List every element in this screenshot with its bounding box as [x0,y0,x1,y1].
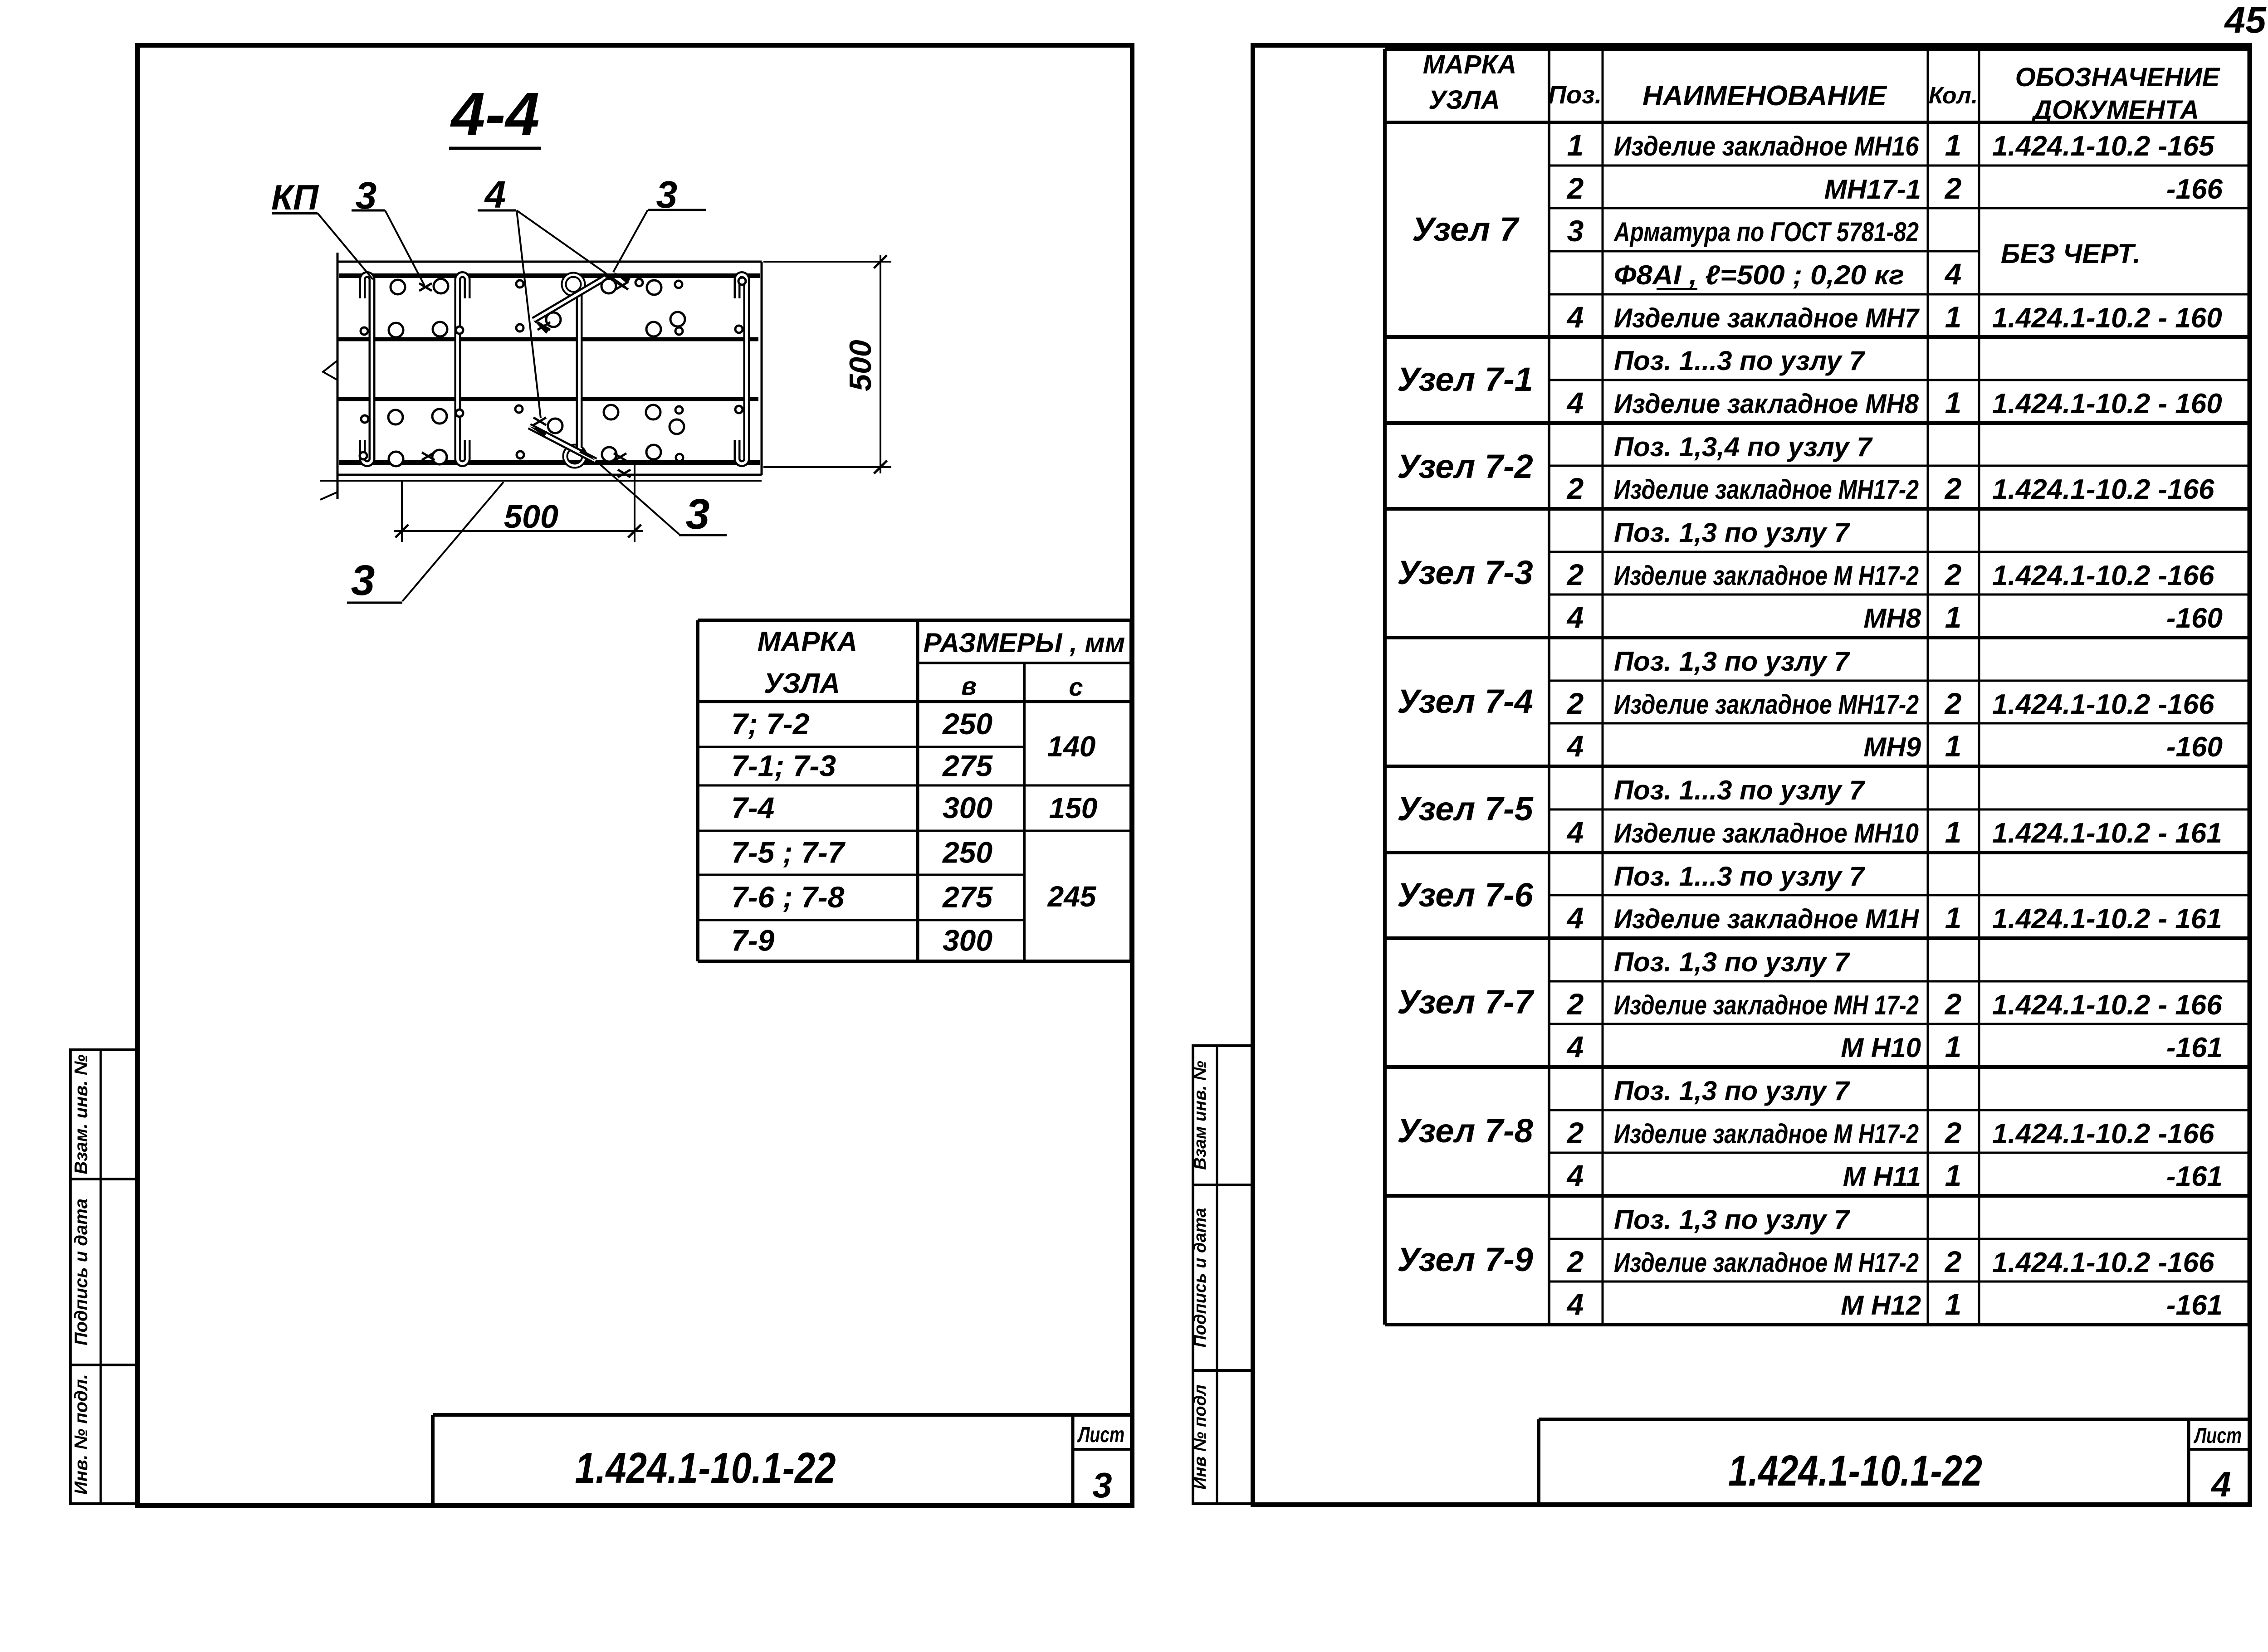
svg-text:7-4: 7-4 [731,791,774,824]
svg-text:7-9: 7-9 [731,924,775,957]
svg-text:2: 2 [1944,1116,1962,1150]
svg-text:2: 2 [1566,558,1584,591]
svg-text:-161: -161 [2166,1032,2223,1063]
svg-text:4: 4 [1566,300,1584,334]
svg-text:Поз. 1,3,4 по узлу 7: Поз. 1,3,4 по узлу 7 [1614,432,1873,462]
svg-text:Узел 7-7: Узел 7-7 [1397,983,1535,1021]
svg-text:Изделие закладное МН 17-2: Изделие закладное МН 17-2 [1614,990,1919,1020]
svg-text:1.424.1-10.2 -166: 1.424.1-10.2 -166 [1992,1118,2214,1150]
svg-text:Ф8АI , ℓ=500 ; 0,20 кг: Ф8АI , ℓ=500 ; 0,20 кг [1614,260,1904,290]
svg-text:Изделие закладное МН17-2: Изделие закладное МН17-2 [1614,474,1919,505]
svg-text:4: 4 [1944,257,1962,291]
svg-text:ДОКУМЕНТА: ДОКУМЕНТА [2031,95,2199,125]
svg-text:4: 4 [1566,729,1584,763]
svg-text:45: 45 [2224,0,2267,41]
svg-text:1.424.1-10.1-22: 1.424.1-10.1-22 [575,1444,836,1492]
svg-text:-161: -161 [2166,1290,2223,1321]
svg-text:Изделие закладное М Н17-2: Изделие закладное М Н17-2 [1614,1119,1919,1149]
svg-text:МН9: МН9 [1863,732,1921,762]
svg-text:1.424.1-10.2 -166: 1.424.1-10.2 -166 [1992,560,2214,591]
svg-text:Инв № подл: Инв № подл [1191,1384,1210,1489]
svg-text:1: 1 [1945,128,1962,162]
svg-text:250: 250 [942,836,992,869]
svg-text:275: 275 [942,880,993,914]
svg-text:1: 1 [1945,386,1962,419]
svg-text:РАЗМЕРЫ , мм: РАЗМЕРЫ , мм [924,628,1125,658]
svg-text:Поз. 1,3 по узлу 7: Поз. 1,3 по узлу 7 [1614,1204,1850,1235]
svg-text:Поз. 1,3 по узлу 7: Поз. 1,3 по узлу 7 [1614,517,1850,548]
svg-text:1: 1 [1945,300,1962,334]
svg-text:Поз. 1...3 по узлу 7: Поз. 1...3 по узлу 7 [1614,346,1865,376]
svg-text:1.424.1-10.2 - 160: 1.424.1-10.2 - 160 [1992,388,2222,419]
svg-text:1.424.1-10.2 -166: 1.424.1-10.2 -166 [1992,689,2214,720]
svg-text:Поз.: Поз. [1548,80,1602,109]
svg-text:УЗЛА: УЗЛА [1428,85,1500,115]
svg-text:НАИМЕНОВАНИЕ: НАИМЕНОВАНИЕ [1642,80,1887,112]
svg-text:3: 3 [1567,214,1584,248]
svg-text:1: 1 [1945,815,1962,849]
svg-text:МАРКА: МАРКА [1423,50,1516,79]
svg-text:140: 140 [1047,730,1096,763]
svg-text:1.424.1-10.2 - 161: 1.424.1-10.2 - 161 [1992,818,2222,849]
svg-text:4: 4 [2210,1464,2231,1504]
svg-text:1: 1 [1945,729,1962,763]
svg-text:Лист: Лист [1077,1423,1124,1447]
svg-text:Узел 7-8: Узел 7-8 [1397,1112,1534,1150]
svg-text:2: 2 [1944,687,1962,720]
svg-text:1: 1 [1945,1159,1962,1192]
svg-text:2: 2 [1566,1245,1584,1278]
svg-text:М Н10: М Н10 [1841,1033,1921,1063]
svg-text:Подпись и дата: Подпись и дата [1191,1208,1210,1347]
svg-text:Изделие закладное МН17-2: Изделие закладное МН17-2 [1614,689,1919,720]
svg-text:1: 1 [1567,128,1584,162]
svg-text:1: 1 [1945,600,1962,634]
svg-text:2: 2 [1944,987,1962,1021]
svg-text:7-1; 7-3: 7-1; 7-3 [731,749,836,783]
svg-text:Поз. 1,3 по узлу 7: Поз. 1,3 по узлу 7 [1614,947,1850,977]
svg-text:1: 1 [1945,1030,1962,1063]
svg-text:300: 300 [943,924,992,957]
svg-text:2: 2 [1566,687,1584,720]
svg-text:Узел 7-1: Узел 7-1 [1397,361,1533,398]
svg-text:Узел 7-3: Узел 7-3 [1397,554,1533,591]
svg-text:4: 4 [1566,1287,1584,1321]
svg-text:4: 4 [1566,815,1584,849]
svg-text:Взам. инв. №: Взам. инв. № [71,1054,91,1174]
svg-text:2: 2 [1944,1245,1962,1278]
svg-text:3: 3 [1092,1465,1112,1505]
svg-text:МН8: МН8 [1863,603,1921,634]
svg-text:1: 1 [1945,901,1962,935]
svg-text:4: 4 [1566,1030,1584,1063]
svg-text:1.424.1-10.2 - 160: 1.424.1-10.2 - 160 [1992,302,2222,334]
svg-text:2: 2 [1566,472,1584,505]
svg-text:4-4: 4-4 [450,80,539,148]
svg-text:КП: КП [271,177,319,217]
svg-text:-161: -161 [2166,1161,2223,1192]
svg-text:Узел 7-4: Узел 7-4 [1397,682,1533,720]
svg-text:М Н12: М Н12 [1841,1290,1921,1321]
svg-text:Изделие закладное М Н17-2: Изделие закладное М Н17-2 [1614,1248,1919,1278]
svg-text:150: 150 [1049,792,1098,824]
svg-text:Изделие закладное МН7: Изделие закладное МН7 [1614,303,1920,333]
svg-text:в: в [961,672,977,700]
svg-text:БЕЗ ЧЕРТ.: БЕЗ ЧЕРТ. [2001,239,2141,269]
svg-text:2: 2 [1566,1116,1584,1150]
svg-text:-160: -160 [2166,603,2223,634]
svg-text:4: 4 [1566,1159,1584,1192]
svg-text:250: 250 [942,707,992,741]
svg-text:Поз. 1,3 по узлу 7: Поз. 1,3 по узлу 7 [1614,1076,1850,1106]
svg-text:Подпись и дата: Подпись и дата [71,1199,91,1345]
svg-text:500: 500 [504,499,558,535]
svg-text:1.424.1-10.2 - 166: 1.424.1-10.2 - 166 [1992,989,2222,1021]
svg-text:ОБОЗНАЧЕНИЕ: ОБОЗНАЧЕНИЕ [2015,63,2221,92]
svg-text:1.424.1-10.2 - 161: 1.424.1-10.2 - 161 [1992,903,2222,935]
svg-text:Поз. 1...3 по узлу 7: Поз. 1...3 по узлу 7 [1614,861,1865,892]
svg-text:1.424.1-10.2 -165: 1.424.1-10.2 -165 [1992,131,2215,162]
svg-text:1.424.1-10.1-22: 1.424.1-10.1-22 [1728,1447,1982,1495]
svg-text:Лист: Лист [2194,1424,2242,1448]
svg-text:-166: -166 [2166,174,2223,205]
svg-text:7; 7-2: 7; 7-2 [731,707,810,741]
svg-text:7-5 ; 7-7: 7-5 ; 7-7 [731,836,846,869]
svg-text:Узел 7-2: Узел 7-2 [1397,448,1533,485]
svg-text:Изделие закладное МН16: Изделие закладное МН16 [1614,131,1919,161]
svg-text:3: 3 [686,490,710,538]
svg-text:275: 275 [942,749,993,783]
svg-text:3: 3 [351,556,375,604]
svg-text:500: 500 [843,340,878,391]
svg-text:Изделие закладное М1Н: Изделие закладное М1Н [1614,904,1920,934]
svg-text:1.424.1-10.2 -166: 1.424.1-10.2 -166 [1992,474,2214,505]
svg-text:МАРКА: МАРКА [758,626,858,658]
svg-text:-160: -160 [2166,731,2223,763]
svg-text:2: 2 [1944,558,1962,591]
svg-text:М Н11: М Н11 [1843,1161,1921,1192]
svg-text:Взам инв. №: Взам инв. № [1191,1061,1210,1170]
svg-text:Узел 7-6: Узел 7-6 [1397,876,1534,914]
svg-text:Изделие закладное МН8: Изделие закладное МН8 [1614,389,1919,419]
svg-text:4: 4 [1566,901,1584,935]
svg-text:Узел 7: Узел 7 [1412,210,1520,248]
svg-text:МН17-1: МН17-1 [1824,174,1921,205]
svg-text:7-6 ; 7-8: 7-6 ; 7-8 [731,880,845,914]
svg-text:1.424.1-10.2 -166: 1.424.1-10.2 -166 [1992,1247,2214,1278]
svg-text:2: 2 [1944,472,1962,505]
svg-text:Изделие закладное М Н17-2: Изделие закладное М Н17-2 [1614,560,1919,591]
svg-text:Изделие закладное МН10: Изделие закладное МН10 [1614,818,1919,848]
svg-text:Узел 7-5: Узел 7-5 [1397,790,1534,828]
svg-text:1: 1 [1945,1287,1962,1321]
svg-text:2: 2 [1566,171,1584,205]
svg-text:300: 300 [943,791,992,824]
svg-text:УЗЛА: УЗЛА [764,668,840,699]
svg-text:4: 4 [1566,386,1584,419]
svg-text:2: 2 [1944,171,1962,205]
svg-text:Кол.: Кол. [1929,83,1978,109]
svg-text:Арматура по ГОСТ 5781-82: Арматура по ГОСТ 5781-82 [1613,217,1919,247]
svg-text:с: с [1069,672,1083,701]
svg-text:245: 245 [1047,880,1097,913]
svg-text:2: 2 [1566,987,1584,1021]
svg-text:4: 4 [1566,600,1584,634]
svg-text:Поз. 1,3 по узлу 7: Поз. 1,3 по узлу 7 [1614,646,1850,677]
svg-text:Инв. № подл.: Инв. № подл. [71,1374,91,1495]
svg-text:Поз. 1...3 по узлу 7: Поз. 1...3 по узлу 7 [1614,775,1865,805]
svg-text:Узел 7-9: Узел 7-9 [1397,1241,1533,1278]
